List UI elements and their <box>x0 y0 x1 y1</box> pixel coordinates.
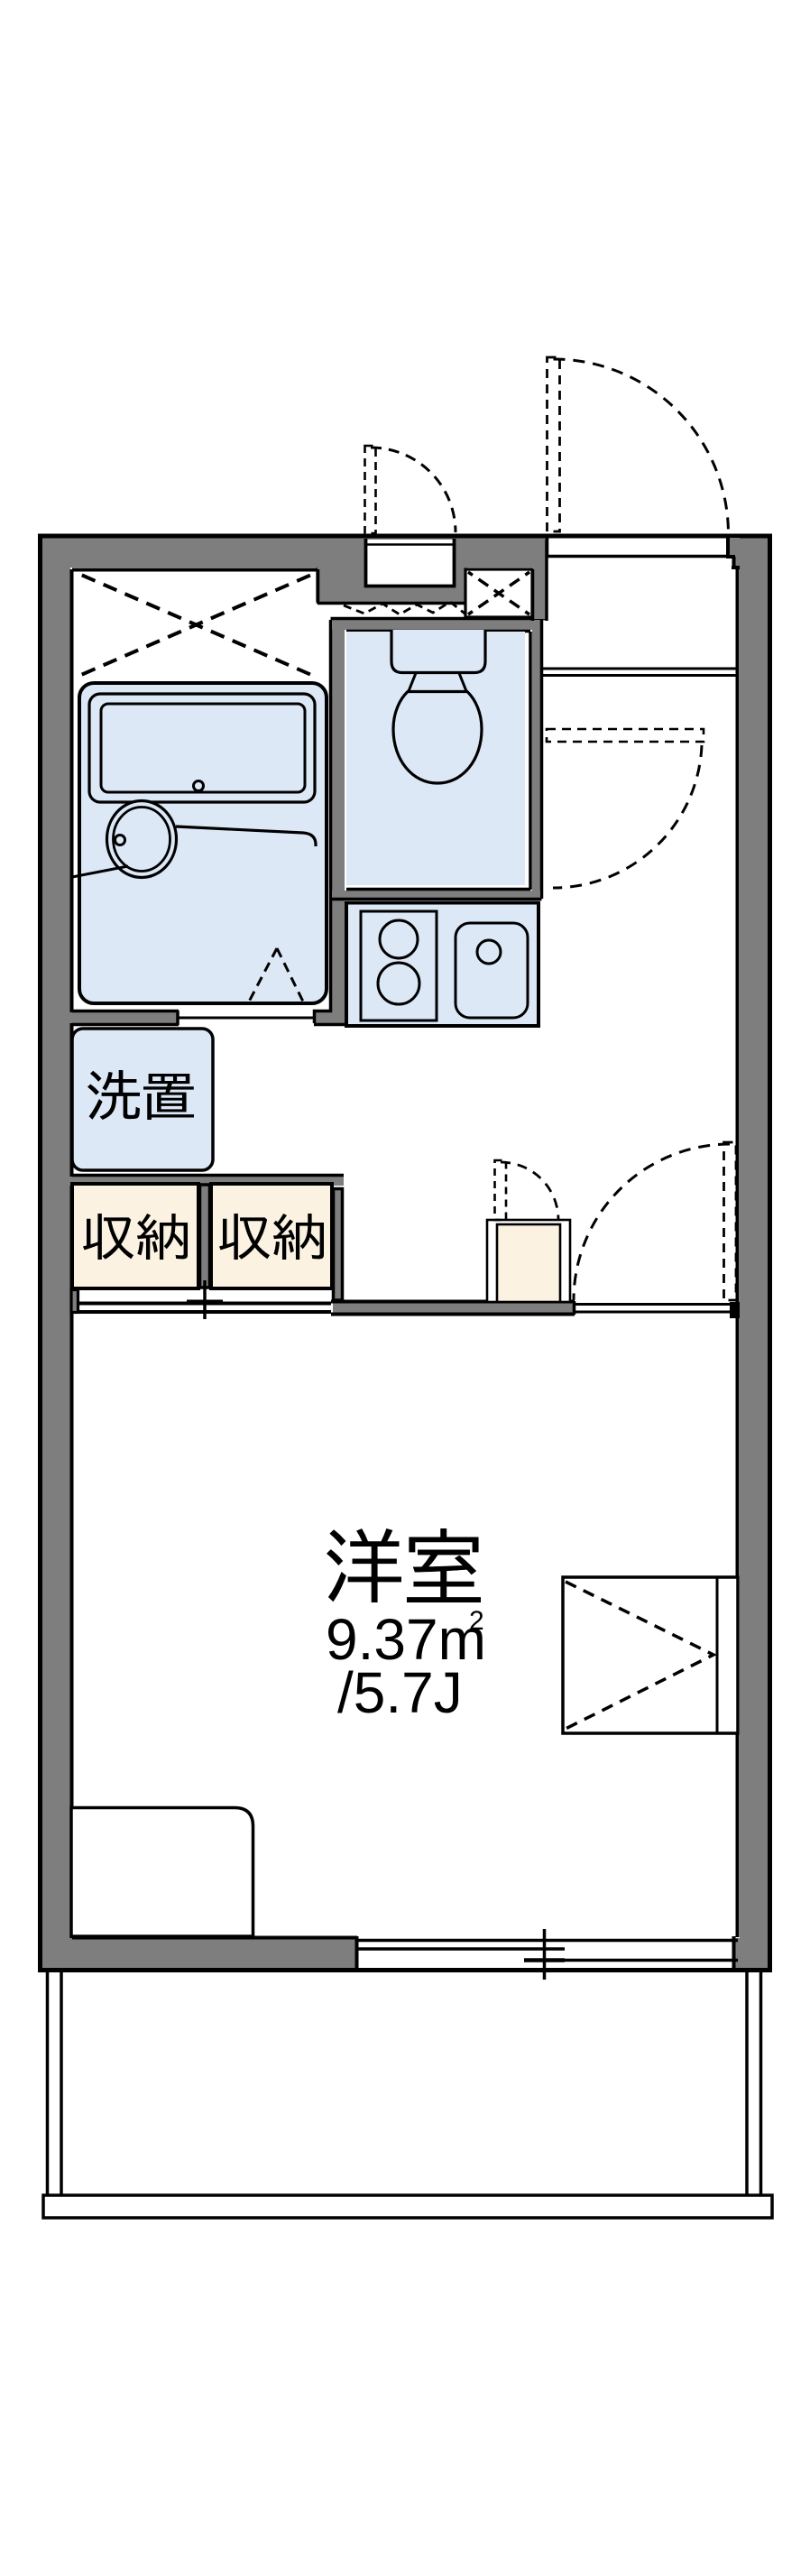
svg-text:/5.7J: /5.7J <box>337 1660 463 1725</box>
svg-text:2: 2 <box>469 1606 484 1636</box>
